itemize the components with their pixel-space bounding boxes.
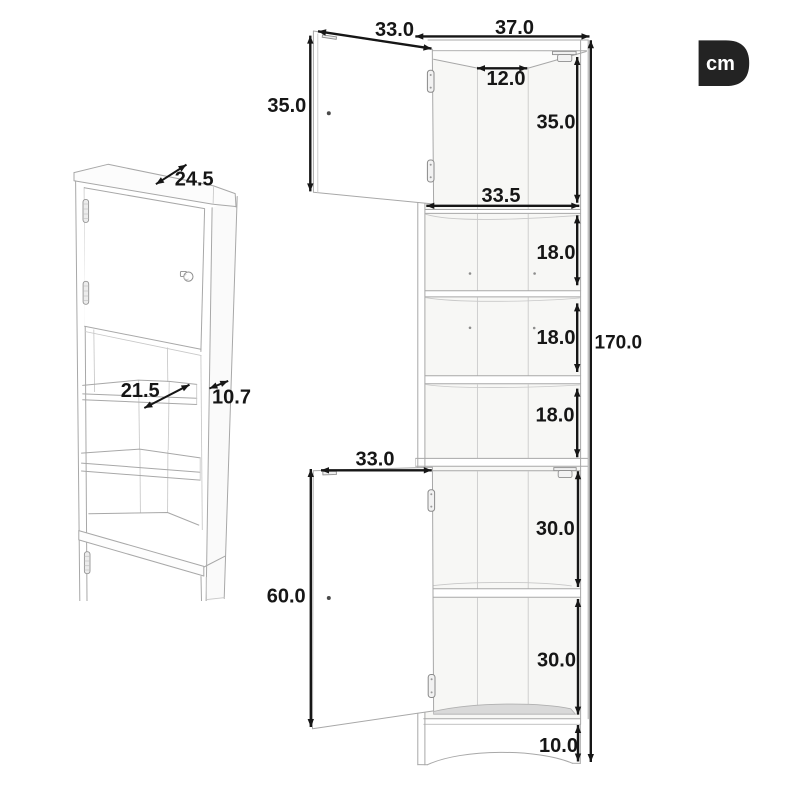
svg-text:10.0: 10.0	[539, 735, 578, 757]
svg-text:18.0: 18.0	[536, 405, 575, 427]
svg-text:170.0: 170.0	[595, 333, 643, 354]
svg-text:33.5: 33.5	[482, 185, 521, 207]
svg-text:18.0: 18.0	[537, 327, 576, 349]
svg-text:35.0: 35.0	[537, 111, 576, 133]
svg-text:10.7: 10.7	[212, 387, 251, 409]
svg-text:33.0: 33.0	[356, 449, 395, 471]
svg-text:37.0: 37.0	[495, 17, 534, 39]
svg-text:60.0: 60.0	[267, 585, 306, 607]
svg-text:12.0: 12.0	[487, 68, 526, 90]
svg-text:33.0: 33.0	[375, 19, 414, 41]
svg-text:21.5: 21.5	[121, 380, 160, 402]
svg-text:35.0: 35.0	[267, 95, 306, 117]
svg-text:30.0: 30.0	[537, 649, 576, 671]
svg-text:30.0: 30.0	[536, 518, 575, 540]
svg-text:cm: cm	[706, 53, 735, 75]
svg-text:24.5: 24.5	[175, 168, 214, 190]
svg-text:18.0: 18.0	[537, 242, 576, 264]
